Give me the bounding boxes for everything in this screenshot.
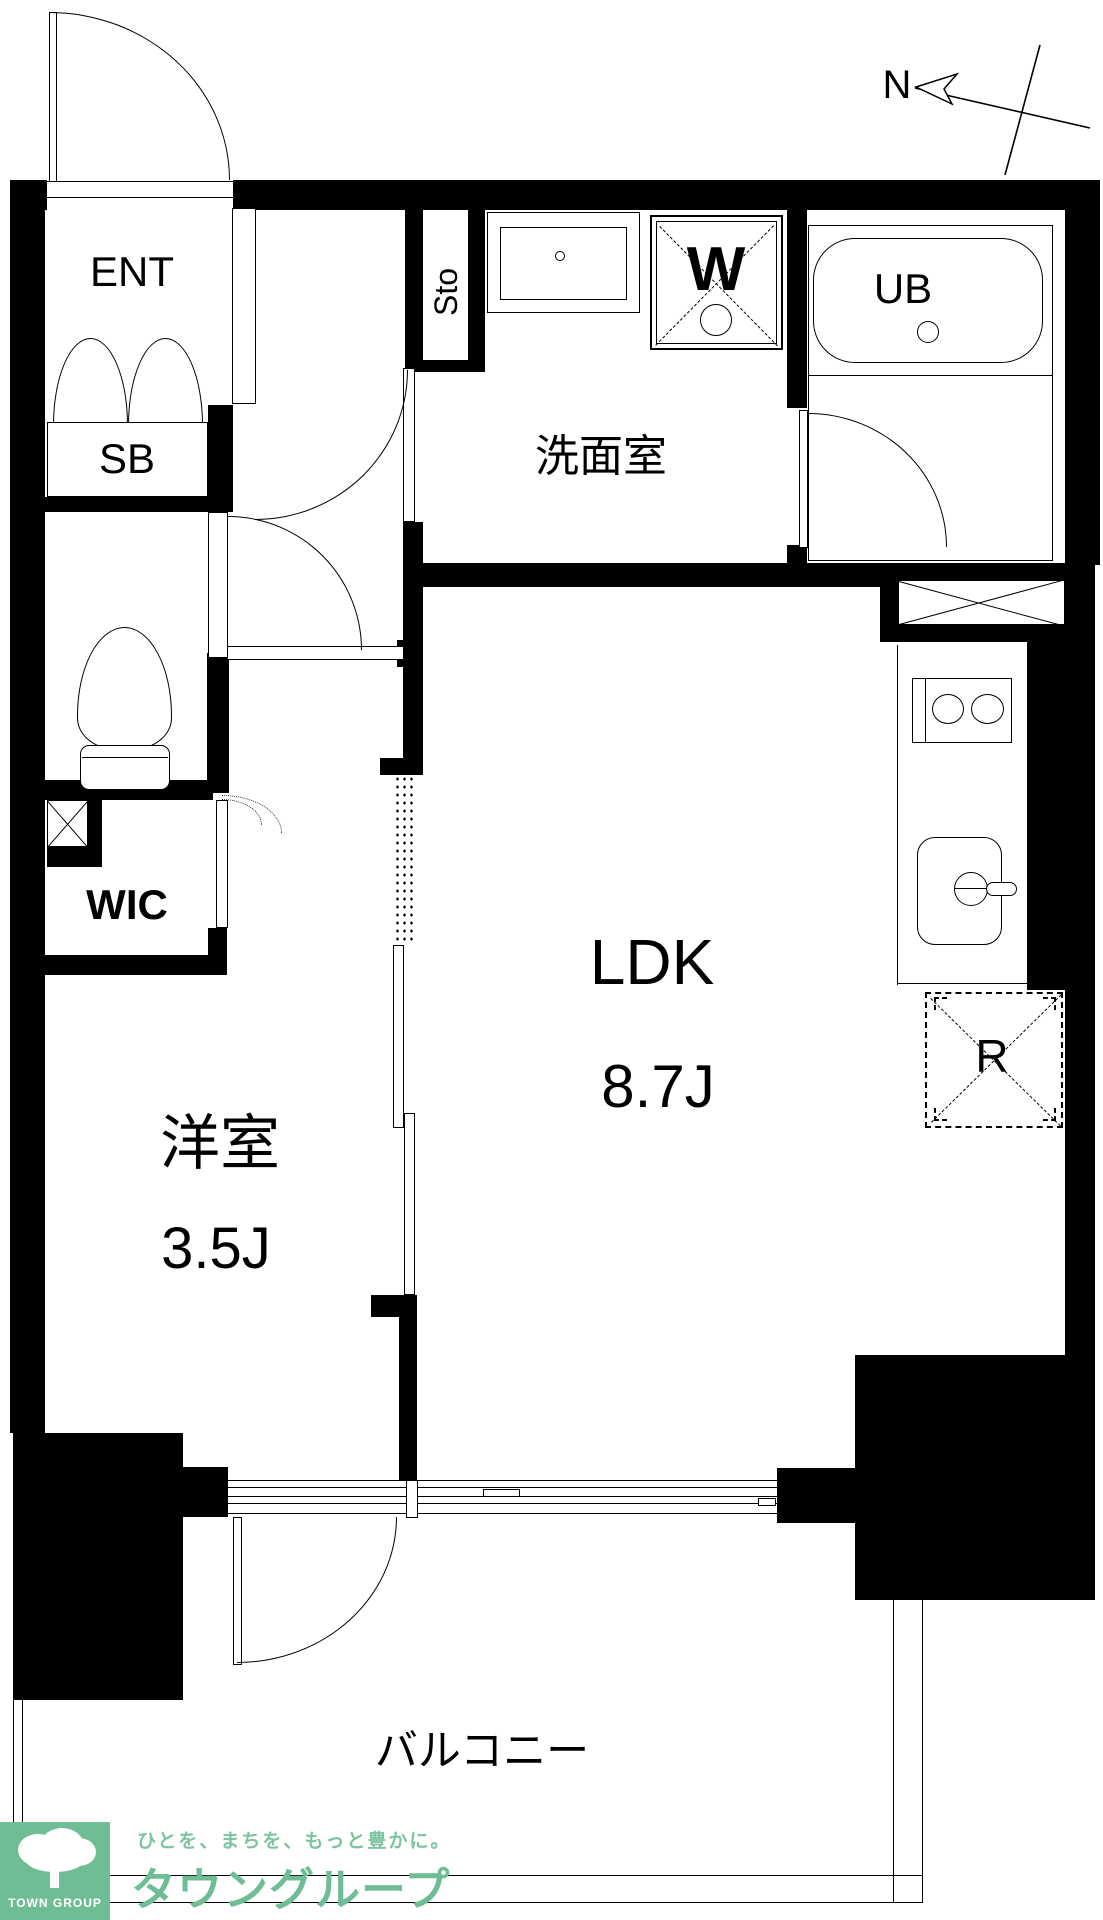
entrance-label: ENT (90, 251, 174, 293)
wall (855, 1355, 1095, 1600)
bathtub-drain (917, 321, 939, 343)
faucet-lever (986, 882, 1017, 896)
vanity-basin (500, 227, 627, 300)
kitchen-counter-edge (897, 983, 1027, 984)
window-line (228, 1513, 777, 1514)
wall (885, 563, 1065, 580)
wall (45, 955, 225, 975)
logo-tree-trunk (50, 1866, 59, 1888)
wall (1027, 642, 1065, 990)
toilet-tank-line (82, 757, 168, 758)
bath-platform-line (808, 375, 1053, 376)
wall (777, 1468, 855, 1523)
wall (880, 563, 898, 642)
wall (10, 180, 45, 1433)
wall (403, 667, 423, 758)
wall (208, 405, 233, 512)
refrigerator-arrow (1043, 997, 1056, 1010)
refrigerator-arrow (934, 997, 947, 1010)
refrigerator-label: R (975, 1033, 1008, 1079)
kitchen-counter-edge (897, 645, 898, 985)
wall (787, 545, 807, 565)
vanity-drain (555, 251, 565, 261)
wall (405, 210, 423, 370)
wall (183, 1467, 228, 1517)
western-room-size-label: 3.5J (161, 1220, 271, 1278)
ldk-size-label: 8.7J (601, 1057, 714, 1117)
logo-caption: TOWN GROUP (8, 1897, 102, 1909)
wall (399, 1295, 417, 1480)
wall (405, 360, 485, 372)
washer-drain (700, 304, 732, 336)
wall (468, 210, 485, 370)
partition-sliding-panel (393, 945, 404, 1128)
compass-north-label: N (883, 65, 912, 105)
entrance-door-arc (49, 12, 230, 180)
entrance-threshold (47, 181, 233, 198)
washroom-label: 洗面室 (535, 435, 667, 479)
railing (893, 1600, 894, 1903)
wall (403, 522, 423, 648)
bedroom-door-arc (228, 516, 362, 650)
wic-label: WIC (86, 884, 168, 926)
wall (380, 758, 423, 775)
unit-bath-label: UB (874, 268, 932, 310)
wall (47, 847, 102, 867)
burner (971, 694, 1004, 724)
window-sash-lock (483, 1489, 520, 1497)
partition-rail-dots (394, 775, 414, 945)
window-mullion (406, 1480, 418, 1518)
wall (371, 1295, 417, 1317)
window-line (228, 1503, 777, 1504)
wall (420, 563, 898, 587)
refrigerator-arrow (934, 1108, 947, 1121)
faucet-line (954, 888, 988, 889)
burner (932, 694, 964, 724)
wall (207, 653, 229, 793)
balcony-door-arc (237, 1517, 397, 1663)
window-sash-lock (758, 1498, 776, 1506)
shoe-box-label: SB (99, 438, 155, 480)
bath-door-leaf (799, 410, 808, 548)
north-arrow (875, 35, 1103, 185)
railing (922, 1600, 923, 1903)
wall (787, 210, 807, 408)
window-line (228, 1480, 777, 1481)
brand-tagline: ひとを、まちを、もっと豊かに。 (137, 1826, 451, 1853)
toilet-tank (80, 745, 170, 790)
balcony-label: バルコニー (375, 1731, 589, 1774)
toilet-sliding-door (208, 512, 228, 658)
hall-partition-wall (232, 208, 256, 404)
refrigerator-arrow (1043, 1108, 1056, 1121)
wall (1065, 563, 1095, 1355)
ldk-label: LDK (590, 930, 715, 994)
partition-sliding-panel (404, 1113, 415, 1295)
storage-label: Sto (430, 268, 462, 316)
western-room-label: 洋室 (160, 1114, 280, 1174)
brand-name: タウングループ (131, 1853, 450, 1918)
floor-plan: N ENT SB Sto 洗面室 W UB WIC LDK 8.7J 洋室 3.… (0, 0, 1103, 1920)
shoe-box-door-right (128, 338, 203, 425)
window-line (228, 1487, 777, 1488)
wall (1065, 208, 1100, 565)
toilet-bowl (77, 627, 172, 750)
wall (880, 625, 1065, 642)
faucet (954, 872, 988, 906)
stove-panel-line (925, 678, 926, 743)
wall (45, 497, 230, 512)
washer-label: W (687, 239, 746, 301)
wall (13, 1433, 183, 1700)
shoe-box-door-left (53, 338, 128, 425)
washroom-door-arc (255, 370, 408, 520)
